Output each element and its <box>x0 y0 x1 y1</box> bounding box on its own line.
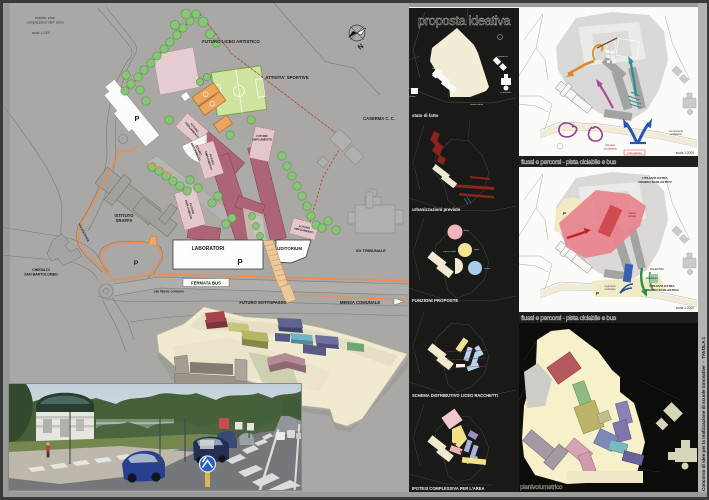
svg-text:flussi e percorsi - pista cicl: flussi e percorsi - pista ciclabile e bu… <box>521 315 617 322</box>
svg-text:SCHEMA DISTRIBUTIVO LICEO RACC: SCHEMA DISTRIBUTIVO LICEO RACCHETTI <box>412 393 498 398</box>
svg-text:P: P <box>134 114 139 123</box>
svg-text:nuova scuola: nuova scuola <box>443 251 457 253</box>
svg-text:proposta ideativa: proposta ideativa <box>418 13 511 28</box>
svg-text:P: P <box>134 260 139 267</box>
svg-text:auditorium: auditorium <box>646 277 658 280</box>
svg-text:via libero comune: via libero comune <box>154 290 185 294</box>
svg-text:ORARIO SCOLASTICO: ORARIO SCOLASTICO <box>638 180 672 184</box>
svg-text:scala 1:2000: scala 1:2000 <box>676 151 694 155</box>
svg-text:liceo: liceo <box>464 230 469 232</box>
svg-text:strada statale: strada statale <box>470 103 484 106</box>
svg-text:ist. sraffa: ist. sraffa <box>432 67 442 70</box>
svg-text:P: P <box>237 258 243 267</box>
svg-text:Concorso di idee per la realiz: Concorso di idee per la realizzazione di… <box>701 336 706 491</box>
svg-text:SAN BARTOLOMEO: SAN BARTOLOMEO <box>24 273 58 277</box>
svg-text:servizi: servizi <box>484 267 491 270</box>
svg-text:sottopasso: sottopasso <box>627 151 642 155</box>
svg-text:complessivo dell' area: complessivo dell' area <box>26 21 64 25</box>
svg-text:FERMATA BUS: FERMATA BUS <box>191 281 221 286</box>
svg-text:FUTURO LICEO ARTISTICO: FUTURO LICEO ARTISTICO <box>202 39 260 44</box>
svg-text:scuola: scuola <box>628 214 636 218</box>
svg-text:scolastica: scolastica <box>603 147 617 151</box>
svg-text:caserma cc: caserma cc <box>497 55 509 58</box>
svg-text:scala 1:2000: scala 1:2000 <box>676 306 694 310</box>
svg-text:ATTIVITA' SPORTIVE: ATTIVITA' SPORTIVE <box>265 75 309 80</box>
svg-text:P: P <box>563 211 566 216</box>
svg-text:CASERMA C. C.: CASERMA C. C. <box>363 116 395 121</box>
svg-text:FUTURO SOTTOPASSO: FUTURO SOTTOPASSO <box>239 300 287 305</box>
svg-text:EX TRIBUNALE: EX TRIBUNALE <box>356 248 386 253</box>
svg-text:AUDITORIUM: AUDITORIUM <box>274 246 302 251</box>
svg-text:sport: sport <box>474 248 479 251</box>
svg-text:flussi e percorsi - pista cicl: flussi e percorsi - pista ciclabile e bu… <box>521 159 617 166</box>
svg-text:scolastica: scolastica <box>670 132 682 136</box>
svg-text:urbanizzazioni previste: urbanizzazioni previste <box>412 207 461 212</box>
svg-text:IPOTESI COMPLESSIVA PER L'AREA: IPOTESI COMPLESSIVA PER L'AREA <box>412 486 484 491</box>
svg-text:P: P <box>596 291 599 296</box>
svg-text:master plan: master plan <box>35 16 55 20</box>
svg-text:ORARIO SCOLASTICO: ORARIO SCOLASTICO <box>645 288 679 292</box>
svg-text:scolastica: scolastica <box>605 288 617 291</box>
svg-text:FUNZIONI PROPOSTE: FUNZIONI PROPOSTE <box>412 298 458 303</box>
svg-text:LABORATORI: LABORATORI <box>192 246 225 252</box>
svg-text:scala 1:1000: scala 1:1000 <box>32 31 50 35</box>
svg-text:PALESTRA: PALESTRA <box>650 267 664 271</box>
svg-text:CHIESA DI: CHIESA DI <box>32 268 50 272</box>
svg-text:MENSA COMUNALE: MENSA COMUNALE <box>340 300 381 305</box>
svg-text:stato di fatto: stato di fatto <box>412 113 439 118</box>
svg-text:planivolumetrico: planivolumetrico <box>520 484 563 491</box>
svg-text:chiesa: chiesa <box>409 96 416 98</box>
svg-text:SRAFFA: SRAFFA <box>116 218 133 223</box>
svg-text:ex tribunale: ex tribunale <box>500 91 512 94</box>
